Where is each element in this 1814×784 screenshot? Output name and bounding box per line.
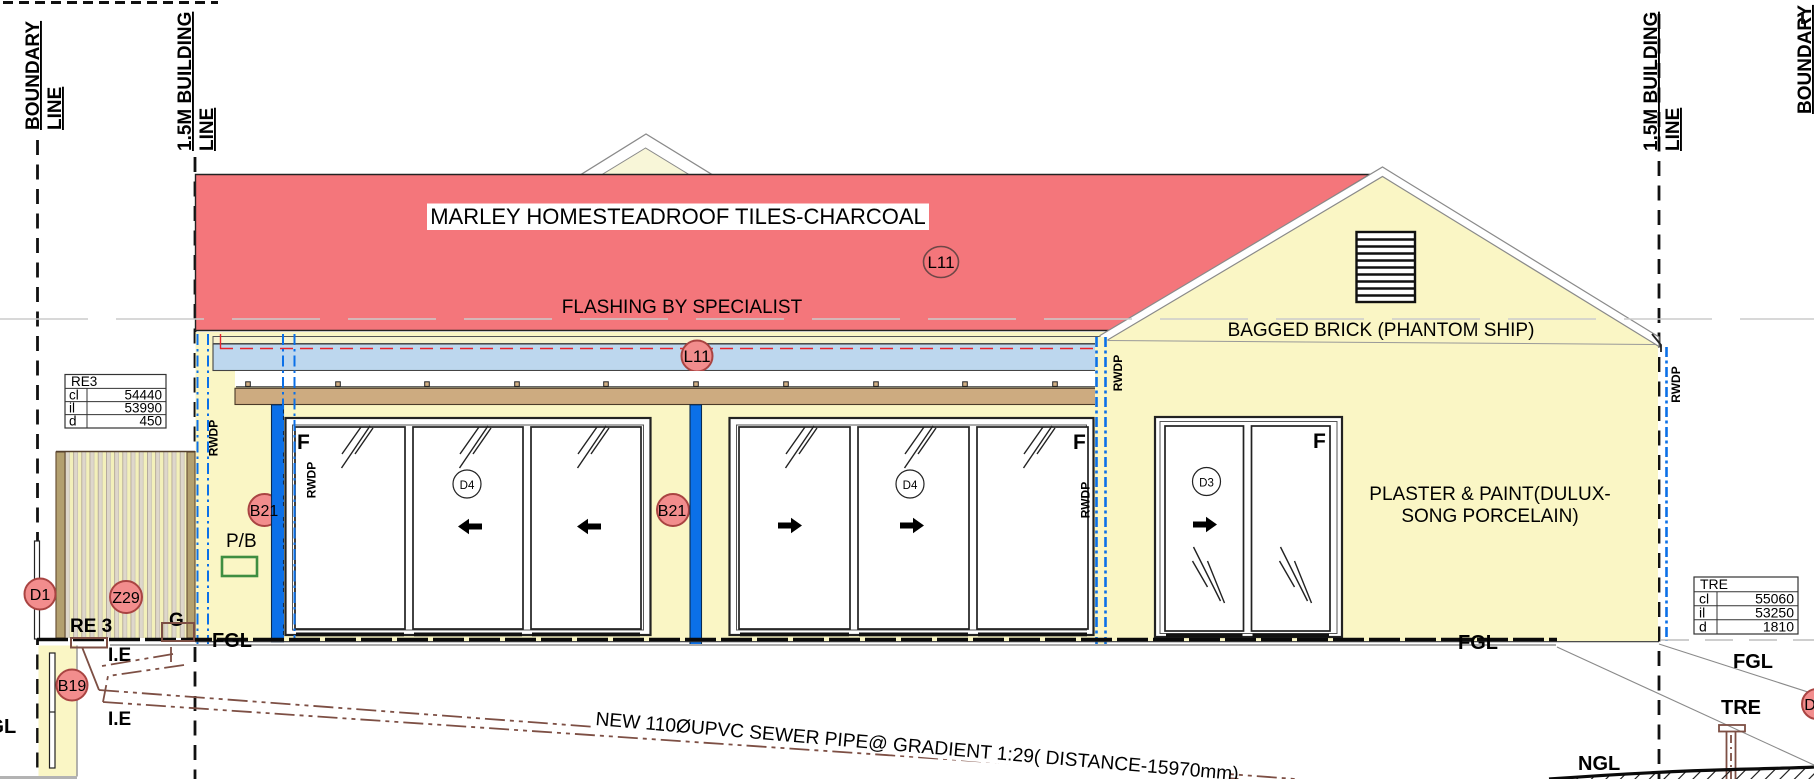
svg-text:B21: B21	[250, 503, 279, 520]
svg-text:LINE: LINE	[45, 87, 66, 130]
svg-text:MARLEY HOMESTEADROOF TILES-CHA: MARLEY HOMESTEADROOF TILES-CHARCOAL	[430, 204, 926, 229]
svg-text:P/B: P/B	[226, 531, 257, 552]
svg-text:NGL: NGL	[1578, 753, 1620, 775]
svg-text:L11: L11	[927, 253, 954, 272]
svg-text:RWDP: RWDP	[305, 462, 319, 498]
svg-text:D4: D4	[903, 480, 918, 492]
svg-text:FGL: FGL	[1458, 632, 1498, 654]
svg-text:d: d	[69, 414, 77, 429]
svg-text:RE 3: RE 3	[70, 616, 112, 637]
svg-text:D1: D1	[30, 587, 51, 604]
svg-text:450: 450	[139, 414, 162, 429]
svg-text:SONG PORCELAIN): SONG PORCELAIN)	[1401, 506, 1578, 527]
svg-text:F: F	[1313, 430, 1326, 453]
svg-text:G: G	[169, 610, 184, 631]
svg-text:1810: 1810	[1763, 618, 1794, 634]
svg-text:B21: B21	[658, 503, 687, 520]
svg-text:RWDP: RWDP	[1669, 366, 1683, 402]
svg-text:PLASTER & PAINT(DULUX-: PLASTER & PAINT(DULUX-	[1369, 484, 1610, 505]
svg-text:RWDP: RWDP	[207, 420, 221, 456]
svg-text:TRE: TRE	[1721, 697, 1761, 719]
svg-text:D: D	[1804, 697, 1814, 714]
svg-text:1.5M BUILDING: 1.5M BUILDING	[175, 12, 196, 151]
svg-text:FGL: FGL	[212, 630, 252, 652]
svg-text:B19: B19	[58, 678, 87, 695]
svg-text:F: F	[1073, 431, 1086, 454]
svg-text:1.5M BUILDING: 1.5M BUILDING	[1641, 12, 1662, 151]
svg-text:BOUNDARY: BOUNDARY	[1795, 5, 1814, 114]
svg-text:RWDP: RWDP	[1111, 355, 1125, 391]
svg-text:RWDP: RWDP	[1079, 482, 1093, 518]
svg-text:D3: D3	[1199, 478, 1214, 490]
svg-text:d: d	[1699, 618, 1707, 634]
svg-text:FGL: FGL	[1733, 651, 1773, 673]
svg-text:LINE: LINE	[197, 108, 218, 151]
svg-text:L11: L11	[683, 347, 710, 366]
svg-text:D4: D4	[460, 480, 475, 492]
svg-text:NGL: NGL	[0, 716, 16, 738]
svg-text:BOUNDARY: BOUNDARY	[23, 21, 44, 130]
svg-text:I.E: I.E	[108, 709, 131, 730]
svg-text:FLASHING BY SPECIALIST: FLASHING BY SPECIALIST	[562, 297, 803, 318]
svg-text:BAGGED BRICK (PHANTOM SHIP): BAGGED BRICK (PHANTOM SHIP)	[1228, 320, 1535, 341]
svg-text:Z29: Z29	[112, 590, 140, 607]
svg-text:F: F	[297, 431, 310, 454]
svg-text:LINE: LINE	[1663, 108, 1684, 151]
